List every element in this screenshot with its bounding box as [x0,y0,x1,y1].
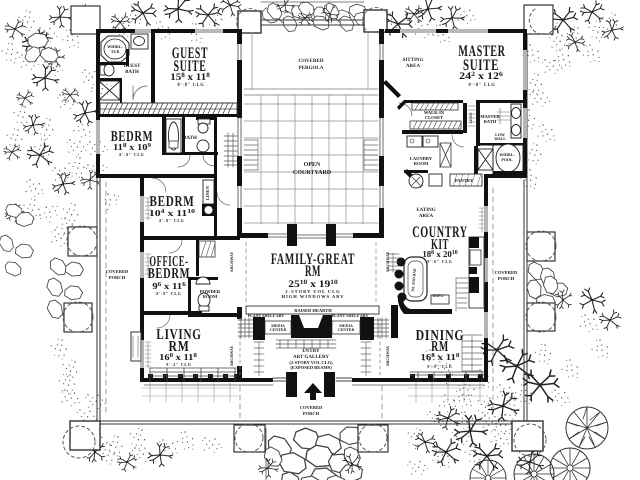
svg-text:118 x 109: 118 x 109 [113,142,151,152]
svg-text:PORCH: PORCH [498,276,515,281]
svg-text:242 x 126: 242 x 126 [459,71,504,82]
svg-text:COVERED: COVERED [298,58,323,64]
svg-text:ROOM: ROOM [414,161,429,166]
svg-text:ENTRY: ENTRY [302,348,320,354]
svg-text:LINEN: LINEN [469,112,473,124]
svg-text:168 x 118: 168 x 118 [420,352,459,362]
svg-text:COVERED: COVERED [300,405,323,410]
svg-text:9'-0" CLG: 9'-0" CLG [468,82,495,88]
svg-text:9'-0" CLG: 9'-0" CLG [427,259,452,264]
svg-text:ARCHWAY: ARCHWAY [385,346,390,367]
svg-text:WALL: WALL [494,136,506,141]
svg-text:TUB: TUB [111,49,120,54]
svg-text:CENTER: CENTER [270,327,287,332]
svg-text:9'-0" CLG: 9'-0" CLG [427,364,452,369]
svg-text:CENTER: CENTER [338,327,355,332]
svg-text:AREA: AREA [419,213,434,219]
svg-text:PORCH: PORCH [109,275,126,280]
svg-text:ARCHWAY: ARCHWAY [385,252,390,273]
svg-text:PORCH: PORCH [303,411,320,416]
svg-text:BATH: BATH [484,119,497,124]
svg-text:BATH: BATH [125,69,139,75]
svg-text:8'-8" CLG: 8'-8" CLG [177,82,204,88]
svg-text:POOL: POOL [501,157,513,162]
svg-text:PLANT SHELF ABV: PLANT SHELF ABV [248,313,285,318]
svg-text:OPEN: OPEN [304,162,321,168]
svg-text:158 x 118: 158 x 118 [170,72,210,83]
svg-text:168 x 118: 168 x 118 [159,352,197,362]
svg-text:COVERED: COVERED [495,270,518,275]
svg-text:REFG: REFG [432,293,443,298]
svg-text:PERGOLA: PERGOLA [299,65,324,71]
svg-text:RAISED HEARTH: RAISED HEARTH [294,308,332,313]
svg-text:PLANT SHELF ABV: PLANT SHELF ABV [332,313,369,318]
svg-text:EATING: EATING [416,207,435,213]
svg-text:8'-8" CLG: 8'-8" CLG [119,152,144,157]
svg-text:ARCHWAY: ARCHWAY [229,252,234,273]
svg-text:COURTYARD: COURTYARD [293,170,332,176]
svg-text:PANTRY: PANTRY [455,178,474,183]
svg-text:8'-8" CLG: 8'-8" CLG [159,218,184,223]
svg-text:ROOM: ROOM [203,294,218,299]
svg-text:8'-8" CLG: 8'-8" CLG [156,291,181,296]
svg-text:HIGH WINDOWS ABV: HIGH WINDOWS ABV [282,294,345,299]
svg-text:(EXPOSED BEAMS): (EXPOSED BEAMS) [290,365,332,370]
svg-text:ARCHWAY: ARCHWAY [229,346,234,367]
svg-text:96 x 116: 96 x 116 [152,281,186,291]
svg-text:CLOSET: CLOSET [425,115,443,120]
svg-text:BEDRM: BEDRM [148,266,191,282]
svg-text:COVERED: COVERED [106,269,129,274]
svg-text:LINEN: LINEN [205,185,210,200]
svg-text:9'-4" CLG: 9'-4" CLG [166,362,191,367]
svg-text:BATH: BATH [183,135,197,141]
svg-text:SITTING: SITTING [403,57,424,63]
svg-text:GUEST: GUEST [124,63,142,69]
svg-text:RM: RM [305,263,321,280]
svg-text:AREA: AREA [406,63,421,69]
